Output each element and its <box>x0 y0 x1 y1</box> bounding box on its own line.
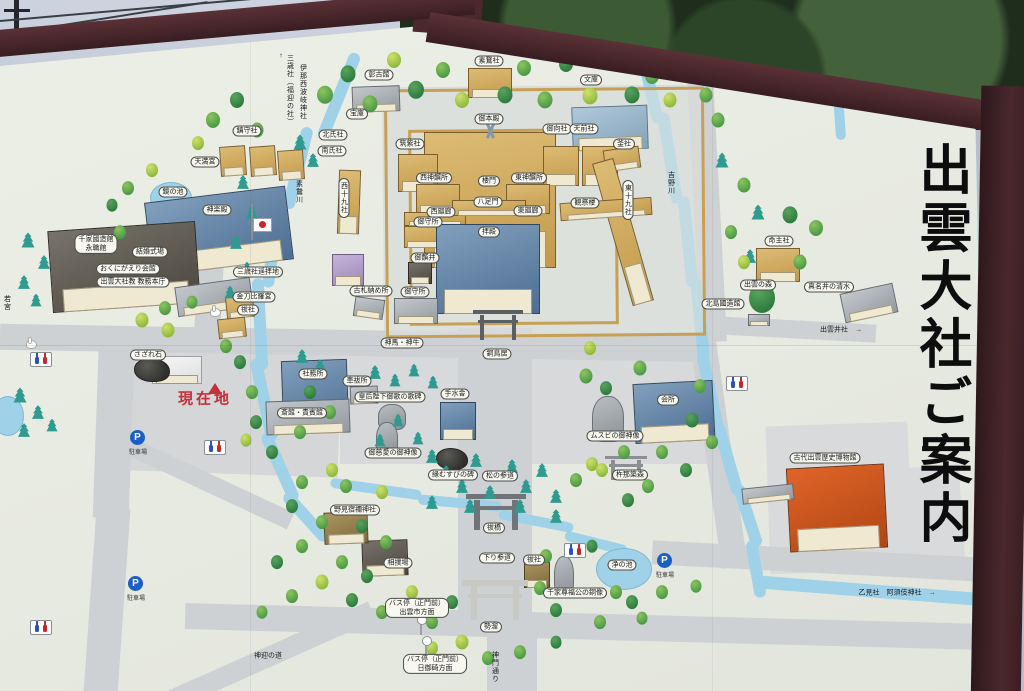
tree <box>550 509 562 523</box>
map-label: バス停（正門前） 出雲市方面 <box>385 598 449 618</box>
tree <box>361 569 373 583</box>
map-label: 古代出雲歴史博物館 <box>790 452 861 463</box>
restroom-icon <box>30 352 52 367</box>
map-label: 文庫 <box>580 74 602 85</box>
tree <box>587 540 598 553</box>
map-label: 会所 <box>657 394 679 405</box>
tree <box>550 603 562 617</box>
tree <box>122 181 134 195</box>
tree <box>296 475 308 489</box>
map-label: 神馬・神牛 <box>381 337 424 348</box>
tree <box>794 255 807 270</box>
tree <box>107 199 118 212</box>
map-label: 鎮守社 <box>233 125 262 136</box>
map-label: 素鵞社 <box>475 55 504 66</box>
omamoridokoro-south-building <box>394 298 438 324</box>
tree <box>271 555 283 569</box>
map-label: 縁むすびの碑 <box>428 469 478 480</box>
map-label: 皇后陛下御歌の歌碑 <box>355 391 426 402</box>
tree <box>387 52 401 68</box>
map-label: 出雲井社 → <box>820 325 862 334</box>
map-label: 八足門 <box>474 196 503 207</box>
chinjusha-building <box>249 145 277 177</box>
map-label: 現在地 <box>178 389 232 409</box>
tree <box>622 493 634 507</box>
tree <box>634 361 647 376</box>
map-label: 命主社 <box>765 235 794 246</box>
map-label: ↑ <box>279 51 283 60</box>
tree <box>31 294 42 307</box>
tree <box>220 339 232 353</box>
tree <box>296 539 308 553</box>
tree <box>341 65 356 82</box>
parking-label: 駐車場 <box>656 570 674 579</box>
tree <box>14 388 27 403</box>
tree <box>162 323 175 338</box>
tree <box>712 113 725 128</box>
parking-icon: P <box>128 576 143 591</box>
tree <box>18 275 30 289</box>
haiden-building <box>436 224 540 314</box>
map-label: 伊那西波岐神社 <box>298 64 307 120</box>
map-label: 千家國造館 永職館 <box>75 234 118 254</box>
map-label: 素鵞川 <box>294 180 303 204</box>
map-label: 西神饌所 <box>416 172 452 183</box>
map-label: 神楽殿 <box>203 204 232 215</box>
parking-label: 駐車場 <box>129 447 147 456</box>
tree <box>656 585 668 599</box>
map-label: 三歳社（福迎の社） <box>285 54 294 126</box>
map-label: 古札納め所 <box>350 285 393 296</box>
tree <box>600 381 612 395</box>
mikei-well-building <box>408 262 432 284</box>
tree <box>250 415 262 429</box>
map-label: 天満宮 <box>191 156 220 167</box>
tree <box>22 233 35 248</box>
tree <box>237 175 249 189</box>
map-label: 三歳社遥拝地 <box>233 266 283 277</box>
map-label: 観祭楼 <box>571 197 600 208</box>
map-label: バス停（正門前） 日御碕方面 <box>403 654 467 674</box>
tree <box>580 369 593 384</box>
frame-right-post <box>971 86 1024 691</box>
map-label: 手水舎 <box>441 388 470 399</box>
tree <box>626 595 638 609</box>
map-label: 千家尊福公の銅像 <box>543 587 607 598</box>
road <box>93 329 136 518</box>
tree <box>596 463 608 477</box>
tree <box>752 205 765 220</box>
tree <box>455 92 469 108</box>
tree <box>691 580 702 593</box>
tree <box>47 419 58 432</box>
tree <box>286 589 298 603</box>
map-label: 南氏社 <box>318 145 347 156</box>
map-label: 乙見社 阿須伎神社 → <box>859 588 936 597</box>
map-label: 真名井の清水 <box>804 281 854 292</box>
map-label: 御慈愛の御神像 <box>365 447 422 458</box>
tree <box>694 379 706 393</box>
map-label: 東十九社 <box>622 180 633 220</box>
map-label: 車祓所 <box>343 375 372 386</box>
tree <box>686 413 699 428</box>
map-label: 下り参道 <box>479 552 515 563</box>
lamp-post <box>420 622 422 635</box>
map-label: 御守所 <box>414 216 443 227</box>
rekishi-hakubutsukan-building <box>786 463 888 552</box>
tree <box>304 385 316 399</box>
map-label: 銅鳥居 <box>483 348 512 359</box>
tree <box>32 405 44 419</box>
temizuya-building <box>440 402 476 440</box>
map-label: 拝殿 <box>478 226 500 237</box>
tree <box>637 612 648 625</box>
map-label: 結婚式場 <box>132 246 168 257</box>
tree <box>192 136 204 150</box>
tree <box>656 445 668 459</box>
map-label: 吉野川 <box>666 171 675 195</box>
map-label: 浄の池 <box>608 559 637 570</box>
tree <box>738 178 751 193</box>
map-label: 野見宿禰神社 <box>330 504 380 515</box>
tree <box>436 62 450 78</box>
tree <box>570 473 582 487</box>
panel-seam <box>712 0 713 691</box>
omamoridokoro-north-building <box>404 226 440 248</box>
tree <box>550 489 562 503</box>
tree <box>380 535 392 549</box>
tree <box>406 585 418 599</box>
panel-seam <box>0 345 1024 346</box>
map-label: 相撲場 <box>384 557 413 568</box>
dou-torii <box>476 310 520 340</box>
enmusubi-stone <box>436 448 468 470</box>
tree <box>809 220 823 236</box>
map-label: 神迎の道 <box>254 651 282 660</box>
map-label: ムスビの御神像 <box>587 430 644 441</box>
tree <box>294 425 306 439</box>
map-label: 宝庫 <box>346 108 368 119</box>
tree <box>307 153 319 167</box>
seidamari-otorii <box>466 580 524 620</box>
parking-icon: P <box>657 553 672 568</box>
map-label: さざれ石 <box>130 349 166 360</box>
tree <box>346 593 358 607</box>
tree <box>206 112 220 128</box>
tree <box>514 645 526 659</box>
map-label: 東神饌所 <box>511 172 547 183</box>
map-label: 彰古館 <box>365 69 394 80</box>
tree <box>700 88 713 103</box>
tree <box>286 499 298 513</box>
map-label: 杵那築森 <box>612 469 648 480</box>
map-label: 西十九社 <box>338 178 349 218</box>
small-shrine-building <box>277 149 305 181</box>
restroom-icon <box>30 620 52 635</box>
tree <box>230 92 244 108</box>
map-label: 金刀比羅宮 <box>233 291 276 302</box>
tenmangu-building <box>219 145 247 177</box>
tree <box>187 296 198 309</box>
map-label: 鏡の池 <box>159 186 188 197</box>
tree <box>266 445 278 459</box>
map-label: 祓社 <box>237 304 259 315</box>
tree <box>456 635 469 650</box>
tree <box>356 519 368 533</box>
tree <box>680 463 692 477</box>
tree <box>725 225 737 239</box>
map-label: 神門通り <box>490 651 499 683</box>
photo-of-shrine-map-sign: 出雲大社ご案内 P駐車場P駐車場P駐車場彰古館素鵞社文庫御本殿筑紫社御向社天前社… <box>0 0 1024 691</box>
sankaden-building <box>332 254 364 286</box>
map-label: 御守所 <box>401 286 430 297</box>
tree <box>336 555 348 569</box>
map-label: 筑紫社 <box>396 138 425 149</box>
map-label: 斎館・貴賓館 <box>277 407 327 418</box>
tree <box>664 93 677 108</box>
rabbit-statue <box>210 308 221 317</box>
tree <box>257 606 268 619</box>
map-label: おくにがえり会館 <box>96 263 160 274</box>
tree <box>246 385 258 399</box>
tree <box>234 355 246 369</box>
tree <box>316 575 329 590</box>
tree <box>136 313 149 328</box>
map-label: 御本殿 <box>475 113 504 124</box>
map-label: 御向社 <box>543 123 572 134</box>
tree <box>376 485 388 499</box>
map-label: 祓橋 <box>483 522 505 533</box>
power-pole-crossarm <box>4 9 30 12</box>
tree <box>536 463 548 477</box>
sign-title: 出雲大社ご案内 <box>898 142 968 582</box>
map-label: 出雲の森 <box>740 279 776 290</box>
tree <box>159 301 171 315</box>
tree <box>316 515 328 529</box>
tree <box>326 463 338 477</box>
map-label: 勢溜 <box>480 621 502 632</box>
tree <box>551 636 562 649</box>
map-label: 楼門 <box>478 175 500 186</box>
tree <box>610 585 622 599</box>
map-label: 御饌井 <box>411 252 440 263</box>
kosatsu-osamedokoro-building <box>353 296 385 320</box>
map-label: 天前社 <box>570 123 599 134</box>
restroom-icon <box>204 440 226 455</box>
kitajima-kokusokan-building <box>748 314 770 326</box>
mimukai-sha-building <box>543 146 579 186</box>
restroom-icon <box>726 376 748 391</box>
tree <box>642 479 654 493</box>
map-label: 北氏社 <box>319 129 348 140</box>
sazare-ishi <box>134 358 170 382</box>
map-label: 釜社 <box>613 138 635 149</box>
map-label: 出雲大社教 教務本庁 <box>97 276 170 287</box>
tree <box>783 206 798 223</box>
japan-flag <box>253 218 272 232</box>
tree <box>146 163 158 177</box>
map-label: 若宮 <box>2 295 11 311</box>
parking-icon: P <box>130 430 145 445</box>
haraisha-west-building <box>217 317 247 340</box>
parking-label: 駐車場 <box>127 593 145 602</box>
map-label: 北島國造館 <box>702 298 745 309</box>
panel-seam <box>250 0 251 691</box>
tree <box>618 445 630 459</box>
tree <box>738 255 750 269</box>
road <box>84 507 131 691</box>
restroom-icon <box>564 543 586 558</box>
map-label: 社務所 <box>299 368 328 379</box>
map-label: 祓社 <box>523 554 545 565</box>
tree <box>340 479 352 493</box>
map-label: 松の参道 <box>482 470 518 481</box>
map-label: 東廻廊 <box>514 205 543 216</box>
tree <box>584 341 596 355</box>
tree <box>517 60 531 76</box>
tree <box>594 615 606 629</box>
